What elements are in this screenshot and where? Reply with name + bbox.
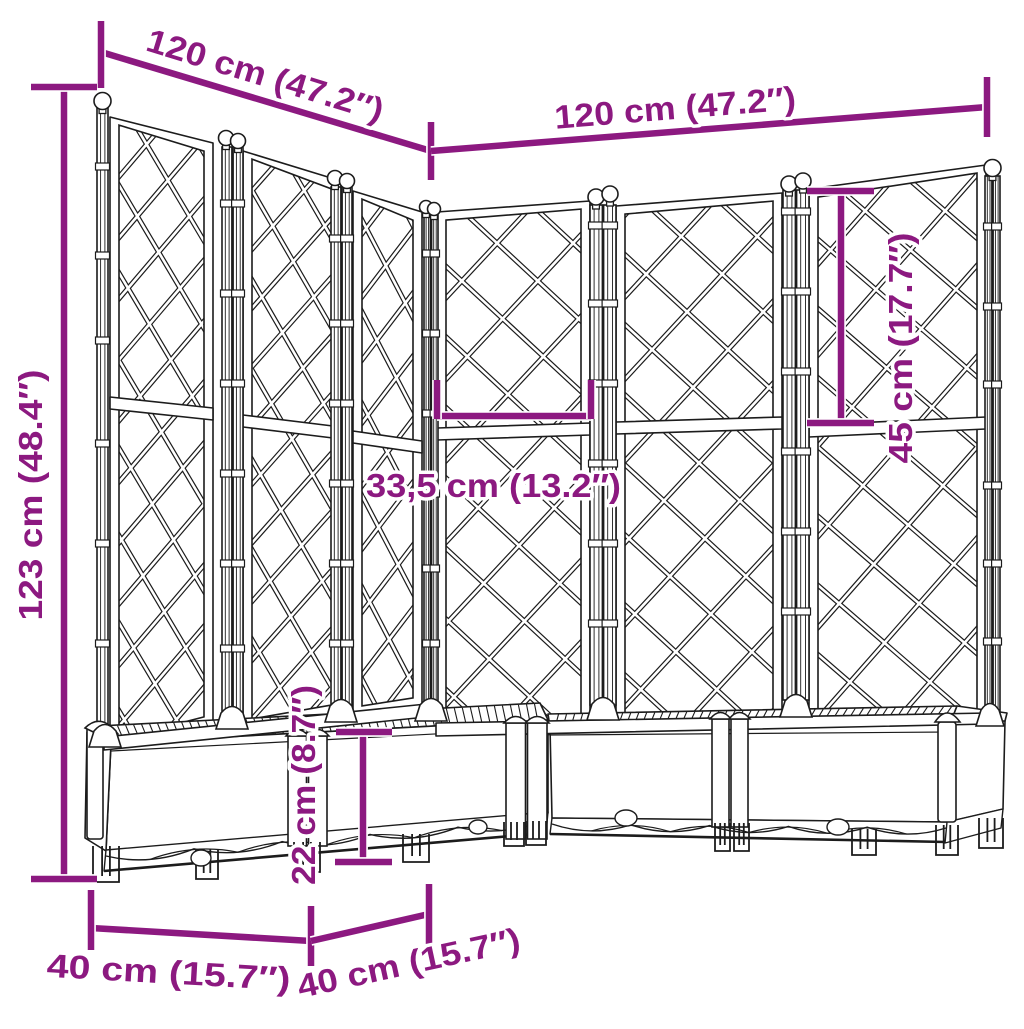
svg-text:22 cm (8.7″): 22 cm (8.7″) bbox=[285, 685, 322, 885]
svg-text:123 cm (48.4″): 123 cm (48.4″) bbox=[12, 370, 49, 621]
svg-text:45 cm (17.7″): 45 cm (17.7″) bbox=[882, 233, 919, 464]
svg-text:33,5 cm (13.2″): 33,5 cm (13.2″) bbox=[366, 467, 621, 504]
